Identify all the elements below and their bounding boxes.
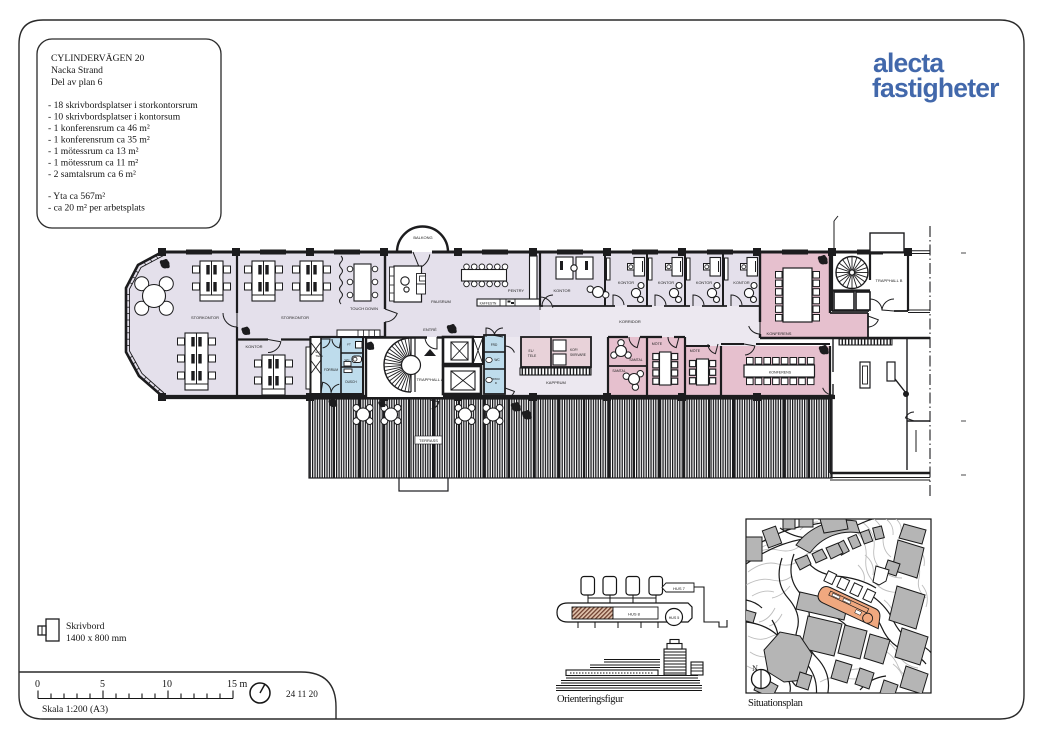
- svg-text:KAFFESTN: KAFFESTN: [480, 302, 497, 306]
- svg-text:KONTOR: KONTOR: [696, 281, 712, 285]
- svg-text:KONTOR: KONTOR: [618, 281, 634, 285]
- svg-text:KONTOR: KONTOR: [245, 344, 262, 349]
- svg-text:WC: WC: [494, 358, 500, 362]
- svg-text:- 18 skrivbordsplatser i stork: - 18 skrivbordsplatser i storkontorsrum: [48, 100, 198, 111]
- svg-text:5: 5: [100, 679, 105, 690]
- svg-text:TELE: TELE: [316, 354, 324, 358]
- svg-text:DUSCH: DUSCH: [345, 380, 357, 384]
- svg-text:STORKONTOR: STORKONTOR: [191, 315, 219, 320]
- svg-text:N: N: [752, 664, 758, 673]
- svg-text:KONTOR: KONTOR: [553, 288, 570, 293]
- svg-text:KAPPRUM: KAPPRUM: [546, 380, 566, 385]
- svg-text:10: 10: [162, 679, 172, 690]
- svg-text:1400 x 800 mm: 1400 x 800 mm: [66, 633, 127, 644]
- svg-text:CYLINDERVÄGEN 20: CYLINDERVÄGEN 20: [51, 52, 144, 64]
- svg-text:MÖTE: MÖTE: [690, 349, 701, 353]
- svg-text:PAUSRUM: PAUSRUM: [431, 299, 451, 304]
- svg-text:FT: FT: [347, 343, 351, 347]
- svg-text:0: 0: [35, 679, 40, 690]
- svg-text:FRD: FRD: [491, 343, 498, 347]
- svg-text:EL/: EL/: [528, 349, 533, 353]
- svg-text:Skala 1:200 (A3): Skala 1:200 (A3): [42, 704, 108, 715]
- svg-text:PENTRY: PENTRY: [508, 288, 524, 293]
- svg-text:- 10 skrivbordsplatser i konto: - 10 skrivbordsplatser i kontorsum: [48, 112, 181, 123]
- svg-text:- ca 20 m² per arbetsplats: - ca 20 m² per arbetsplats: [48, 203, 145, 214]
- svg-text:- 1 mötessrum ca 11 m²: - 1 mötessrum ca 11 m²: [48, 158, 138, 169]
- svg-text:- 1 mötessrum ca 13 m²: - 1 mötessrum ca 13 m²: [48, 146, 139, 157]
- svg-text:BALKONG: BALKONG: [413, 235, 432, 240]
- svg-text:STORKONTOR: STORKONTOR: [281, 315, 309, 320]
- svg-text:KONFERENS: KONFERENS: [767, 331, 792, 336]
- svg-text:KONFERENS: KONFERENS: [769, 371, 792, 375]
- svg-text:Situationsplan: Situationsplan: [748, 698, 804, 709]
- svg-text:MÖTE: MÖTE: [652, 342, 663, 346]
- svg-text:TERRASS: TERRASS: [419, 438, 438, 443]
- svg-text:Skrivbord: Skrivbord: [66, 621, 105, 632]
- svg-text:KORRIDOR: KORRIDOR: [619, 319, 641, 324]
- svg-text:TRAPPHALL B: TRAPPHALL B: [876, 278, 903, 283]
- svg-text:ENTRÉ: ENTRÉ: [423, 327, 437, 332]
- svg-text:- Yta ca 567m²: - Yta ca 567m²: [48, 191, 105, 202]
- svg-text:Del av plan 6: Del av plan 6: [51, 77, 103, 88]
- svg-text:KONTOR: KONTOR: [733, 281, 749, 285]
- svg-text:TELE: TELE: [528, 354, 537, 358]
- svg-text:TOUCH DOWN: TOUCH DOWN: [350, 306, 378, 311]
- svg-text:FÖRRUM: FÖRRUM: [324, 368, 338, 372]
- svg-text:- 2 samtalsrum ca 6 m²: - 2 samtalsrum ca 6 m²: [48, 169, 136, 180]
- svg-text:15 m: 15 m: [227, 679, 248, 690]
- svg-text:- 1 konferensrum ca 35 m²: - 1 konferensrum ca 35 m²: [48, 135, 150, 146]
- svg-text:KOP/: KOP/: [570, 348, 578, 352]
- svg-text:- 1 konferensrum ca 46 m²: - 1 konferensrum ca 46 m²: [48, 123, 150, 134]
- svg-text:Nacka Strand: Nacka Strand: [51, 65, 103, 76]
- svg-text:TRAPPHALL A: TRAPPHALL A: [417, 377, 444, 382]
- svg-text:HUS 5: HUS 5: [669, 616, 680, 620]
- svg-text:HUS 8: HUS 8: [628, 612, 641, 617]
- svg-text:WC: WC: [345, 358, 351, 362]
- svg-text:KONTOR: KONTOR: [658, 281, 674, 285]
- svg-text:SKRIVARE: SKRIVARE: [570, 353, 586, 357]
- svg-text:SAMTAL: SAMTAL: [612, 369, 625, 373]
- svg-text:SAMTAL: SAMTAL: [629, 358, 642, 362]
- svg-text:Orienteringsfigur: Orienteringsfigur: [557, 694, 624, 705]
- svg-text:HUS 7: HUS 7: [673, 586, 686, 591]
- svg-text:fastigheter: fastigheter: [872, 73, 999, 103]
- svg-text:24 11 20: 24 11 20: [286, 689, 318, 699]
